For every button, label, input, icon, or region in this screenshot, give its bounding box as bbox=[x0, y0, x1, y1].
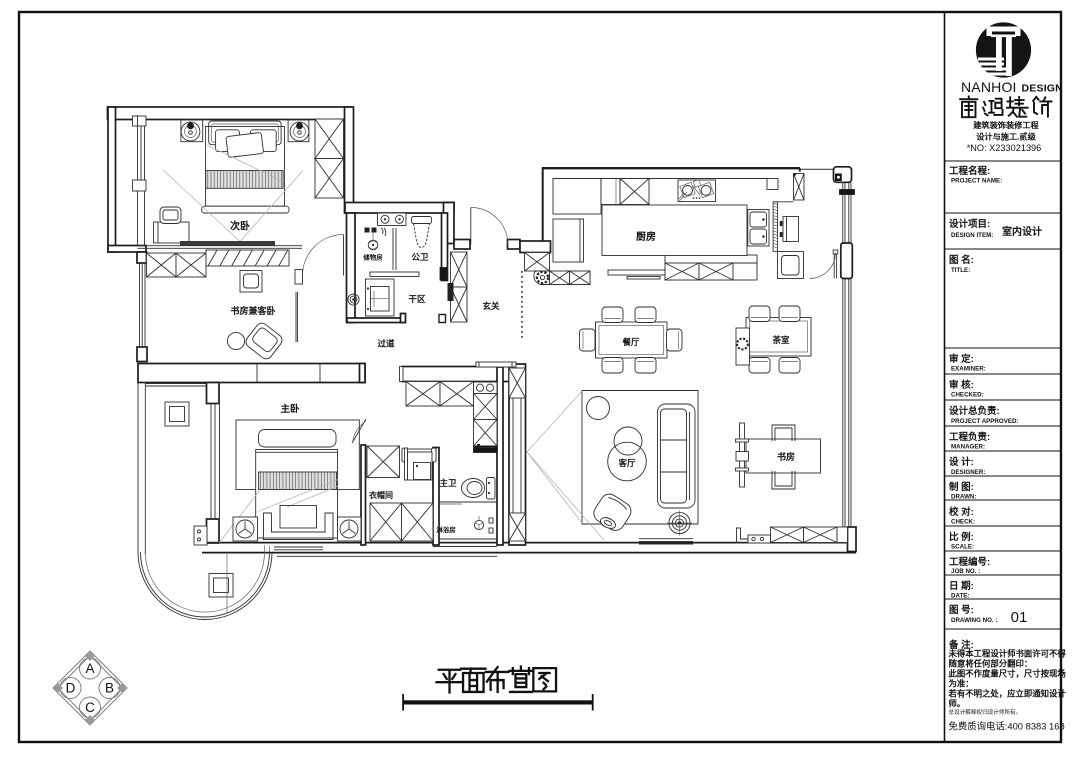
svg-text:设计与施工.贰级: 设计与施工.贰级 bbox=[976, 132, 1036, 142]
svg-text:EXAMINER:: EXAMINER: bbox=[951, 366, 986, 373]
svg-text:MANAGER:: MANAGER: bbox=[951, 444, 985, 451]
svg-text:未得本工程设计师书面许可不得: 未得本工程设计师书面许可不得 bbox=[948, 649, 1067, 659]
svg-text:图 名:: 图 名: bbox=[949, 254, 974, 266]
svg-text:D: D bbox=[66, 681, 76, 696]
svg-text:过道: 过道 bbox=[377, 339, 395, 349]
svg-text:日 期:: 日 期: bbox=[949, 580, 974, 592]
svg-text:衣帽间: 衣帽间 bbox=[369, 490, 393, 500]
svg-text:淋浴房: 淋浴房 bbox=[436, 525, 456, 534]
svg-text:主卫: 主卫 bbox=[439, 478, 457, 488]
svg-text:师。: 师。 bbox=[949, 699, 966, 709]
svg-text:储物房: 储物房 bbox=[362, 253, 383, 262]
svg-text:SCALE:: SCALE: bbox=[951, 544, 974, 551]
svg-text:校 对:: 校 对: bbox=[949, 506, 974, 518]
svg-text:茶室: 茶室 bbox=[771, 335, 790, 345]
svg-text:工程名程:: 工程名程: bbox=[949, 165, 990, 177]
svg-text:PROJECT APPROVED:: PROJECT APPROVED: bbox=[951, 418, 1019, 425]
svg-text:工程负责:: 工程负责: bbox=[949, 431, 990, 443]
svg-text:01: 01 bbox=[1011, 609, 1028, 626]
svg-text:公卫: 公卫 bbox=[411, 252, 429, 262]
svg-text:书房: 书房 bbox=[777, 451, 795, 462]
svg-text:此图不作度量尺寸，尺寸按现场: 此图不作度量尺寸，尺寸按现场 bbox=[949, 669, 1067, 679]
svg-text:TITLE:: TITLE: bbox=[951, 267, 970, 274]
svg-text:主卧: 主卧 bbox=[280, 403, 300, 415]
svg-text:*NO: X233021396: *NO: X233021396 bbox=[967, 143, 1042, 153]
svg-text:若有不明之处，应立即通知设计: 若有不明之处，应立即通知设计 bbox=[948, 689, 1067, 699]
svg-text:书房兼客卧: 书房兼客卧 bbox=[230, 305, 275, 316]
svg-text:CHECKED:: CHECKED: bbox=[951, 392, 984, 399]
svg-text:建筑装饰装修工程: 建筑装饰装修工程 bbox=[973, 120, 1039, 130]
svg-text:DESIGN ITEM:: DESIGN ITEM: bbox=[951, 232, 993, 239]
svg-text:为准：: 为准： bbox=[949, 679, 974, 689]
svg-text:比 例:: 比 例: bbox=[949, 531, 974, 543]
svg-text:工程编号:: 工程编号: bbox=[949, 556, 990, 568]
svg-text:客厅: 客厅 bbox=[617, 458, 636, 468]
svg-text:设计总负责:: 设计总负责: bbox=[949, 405, 1000, 417]
svg-text:PROJECT NAME:: PROJECT NAME: bbox=[951, 178, 1002, 185]
svg-text:免费质询电话:400 8383 168: 免费质询电话:400 8383 168 bbox=[949, 721, 1065, 732]
svg-text:餐厅: 餐厅 bbox=[621, 337, 640, 347]
svg-text:审 核:: 审 核: bbox=[949, 379, 974, 391]
svg-text:CHECK:: CHECK: bbox=[951, 519, 975, 526]
svg-text:NANHOI: NANHOI bbox=[961, 79, 1017, 95]
svg-text:设计项目:: 设计项目: bbox=[949, 218, 990, 230]
svg-text:图 号:: 图 号: bbox=[949, 605, 974, 616]
svg-text:干区: 干区 bbox=[408, 294, 426, 304]
svg-text:玄关: 玄关 bbox=[482, 301, 500, 311]
svg-text:制 图:: 制 图: bbox=[949, 481, 974, 493]
svg-text:DESIGNER:: DESIGNER: bbox=[951, 469, 985, 476]
svg-text:DESIGN: DESIGN bbox=[1022, 83, 1063, 95]
svg-text:室内设计: 室内设计 bbox=[1002, 225, 1042, 238]
svg-text:B: B bbox=[105, 681, 114, 696]
svg-text:A: A bbox=[85, 661, 94, 676]
svg-text:随意将任何部分翻印：: 随意将任何部分翻印： bbox=[949, 659, 1033, 669]
svg-text:次卧: 次卧 bbox=[230, 220, 250, 233]
svg-text:JOB NO. :: JOB NO. : bbox=[951, 568, 980, 575]
svg-text:总设计解释权归设计师所有。: 总设计解释权归设计师所有。 bbox=[949, 708, 1022, 716]
svg-text:厨房: 厨房 bbox=[636, 230, 656, 243]
svg-text:设 计:: 设 计: bbox=[949, 456, 974, 468]
svg-text:DRAWING NO. :: DRAWING NO. : bbox=[951, 617, 997, 624]
svg-text:C: C bbox=[85, 700, 95, 715]
svg-text:审 定:: 审 定: bbox=[949, 353, 974, 365]
